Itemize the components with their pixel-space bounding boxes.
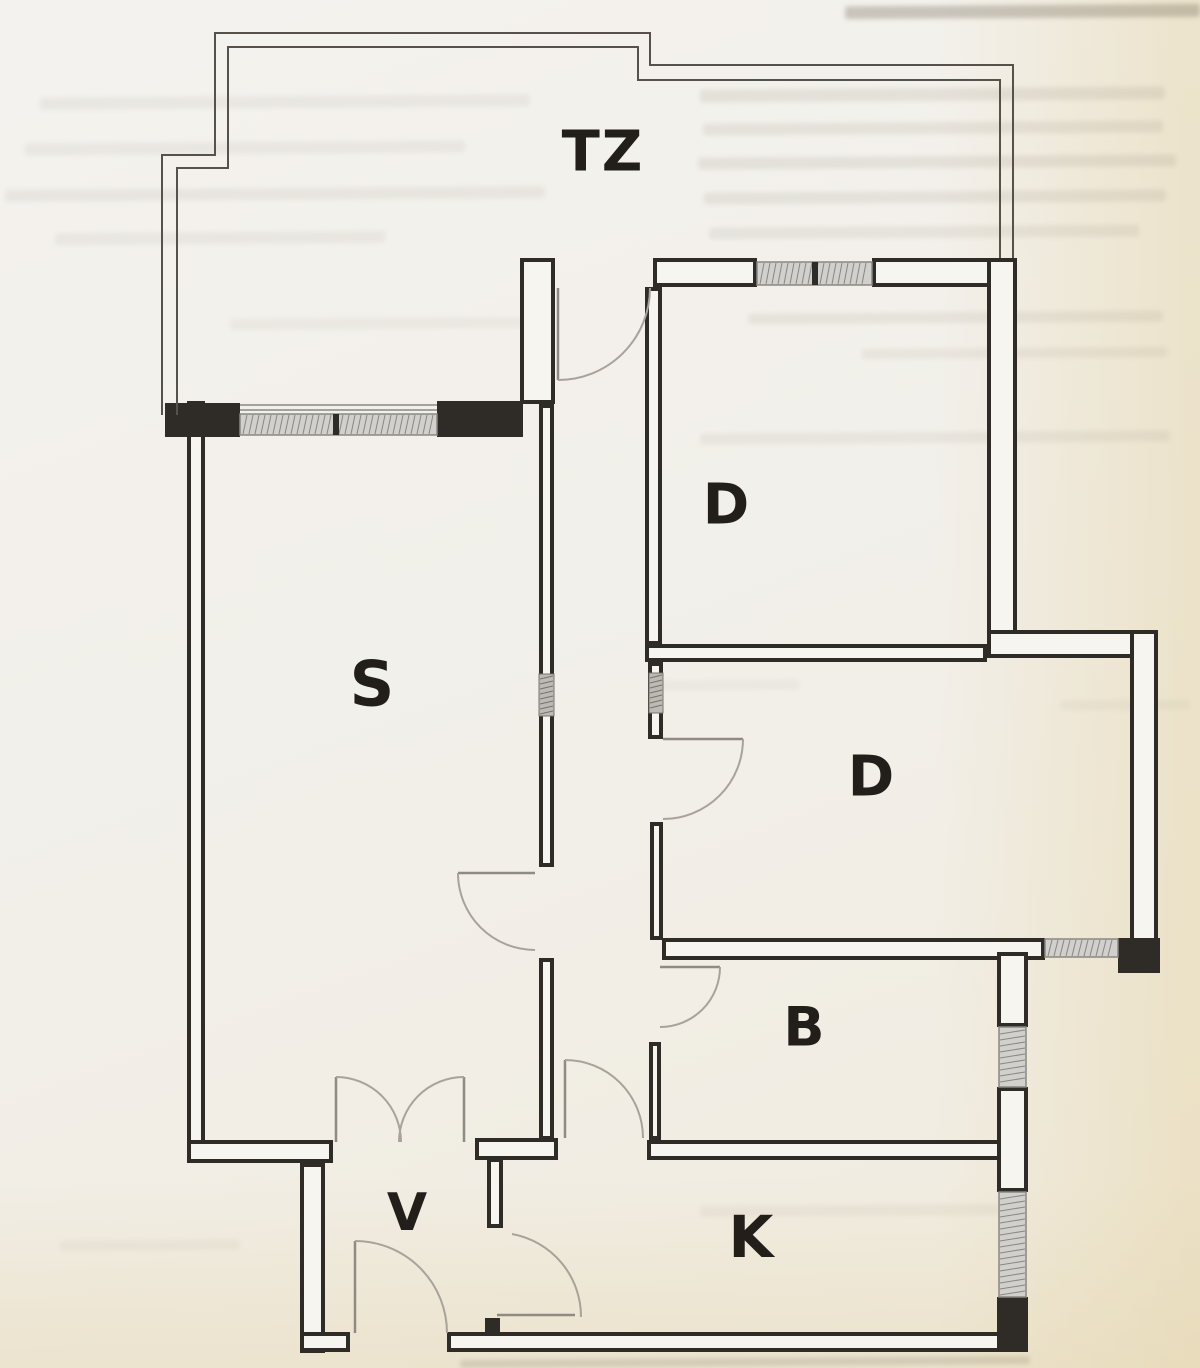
wall: [541, 960, 552, 1138]
wall: [647, 646, 985, 660]
wall: [989, 260, 1015, 646]
door-swing-arc: [336, 1077, 401, 1142]
wall: [449, 1334, 1026, 1350]
wall-block: [485, 1318, 500, 1334]
terrace-outline: [177, 47, 1000, 415]
wall: [999, 1089, 1026, 1190]
door-swing-arc: [355, 1241, 447, 1333]
door-swing-arc: [660, 967, 720, 1027]
door-swing-arc: [458, 873, 535, 950]
wall: [647, 289, 660, 643]
wall: [649, 1142, 1010, 1158]
window-mullion: [812, 262, 818, 285]
wall: [522, 260, 553, 402]
floorplan-drawing: [0, 0, 1200, 1368]
wall: [664, 940, 1043, 958]
wall: [651, 1044, 659, 1138]
wall: [477, 1140, 556, 1158]
wall: [189, 1142, 331, 1161]
wall-block: [1118, 938, 1160, 973]
door-swing-arc: [663, 739, 743, 819]
door-swing-arc: [399, 1077, 464, 1142]
wall: [189, 403, 203, 1161]
wall: [302, 1165, 323, 1351]
wall: [302, 1334, 348, 1350]
wall: [652, 824, 661, 938]
shaft-hatch: [539, 674, 554, 716]
scanned-floorplan-page: TZ S D D B V K: [0, 0, 1200, 1368]
wall: [541, 406, 552, 865]
door-swing-arc: [558, 288, 650, 380]
door-swing-arc: [512, 1234, 581, 1317]
wall: [999, 954, 1026, 1025]
wall: [1132, 632, 1156, 971]
window-mullion: [333, 414, 339, 435]
wall-block: [437, 401, 523, 437]
wall-block: [997, 1297, 1028, 1352]
terrace-outline: [162, 33, 1013, 415]
door-swing-arc: [565, 1060, 643, 1138]
wall: [489, 1160, 501, 1226]
wall: [655, 260, 755, 285]
